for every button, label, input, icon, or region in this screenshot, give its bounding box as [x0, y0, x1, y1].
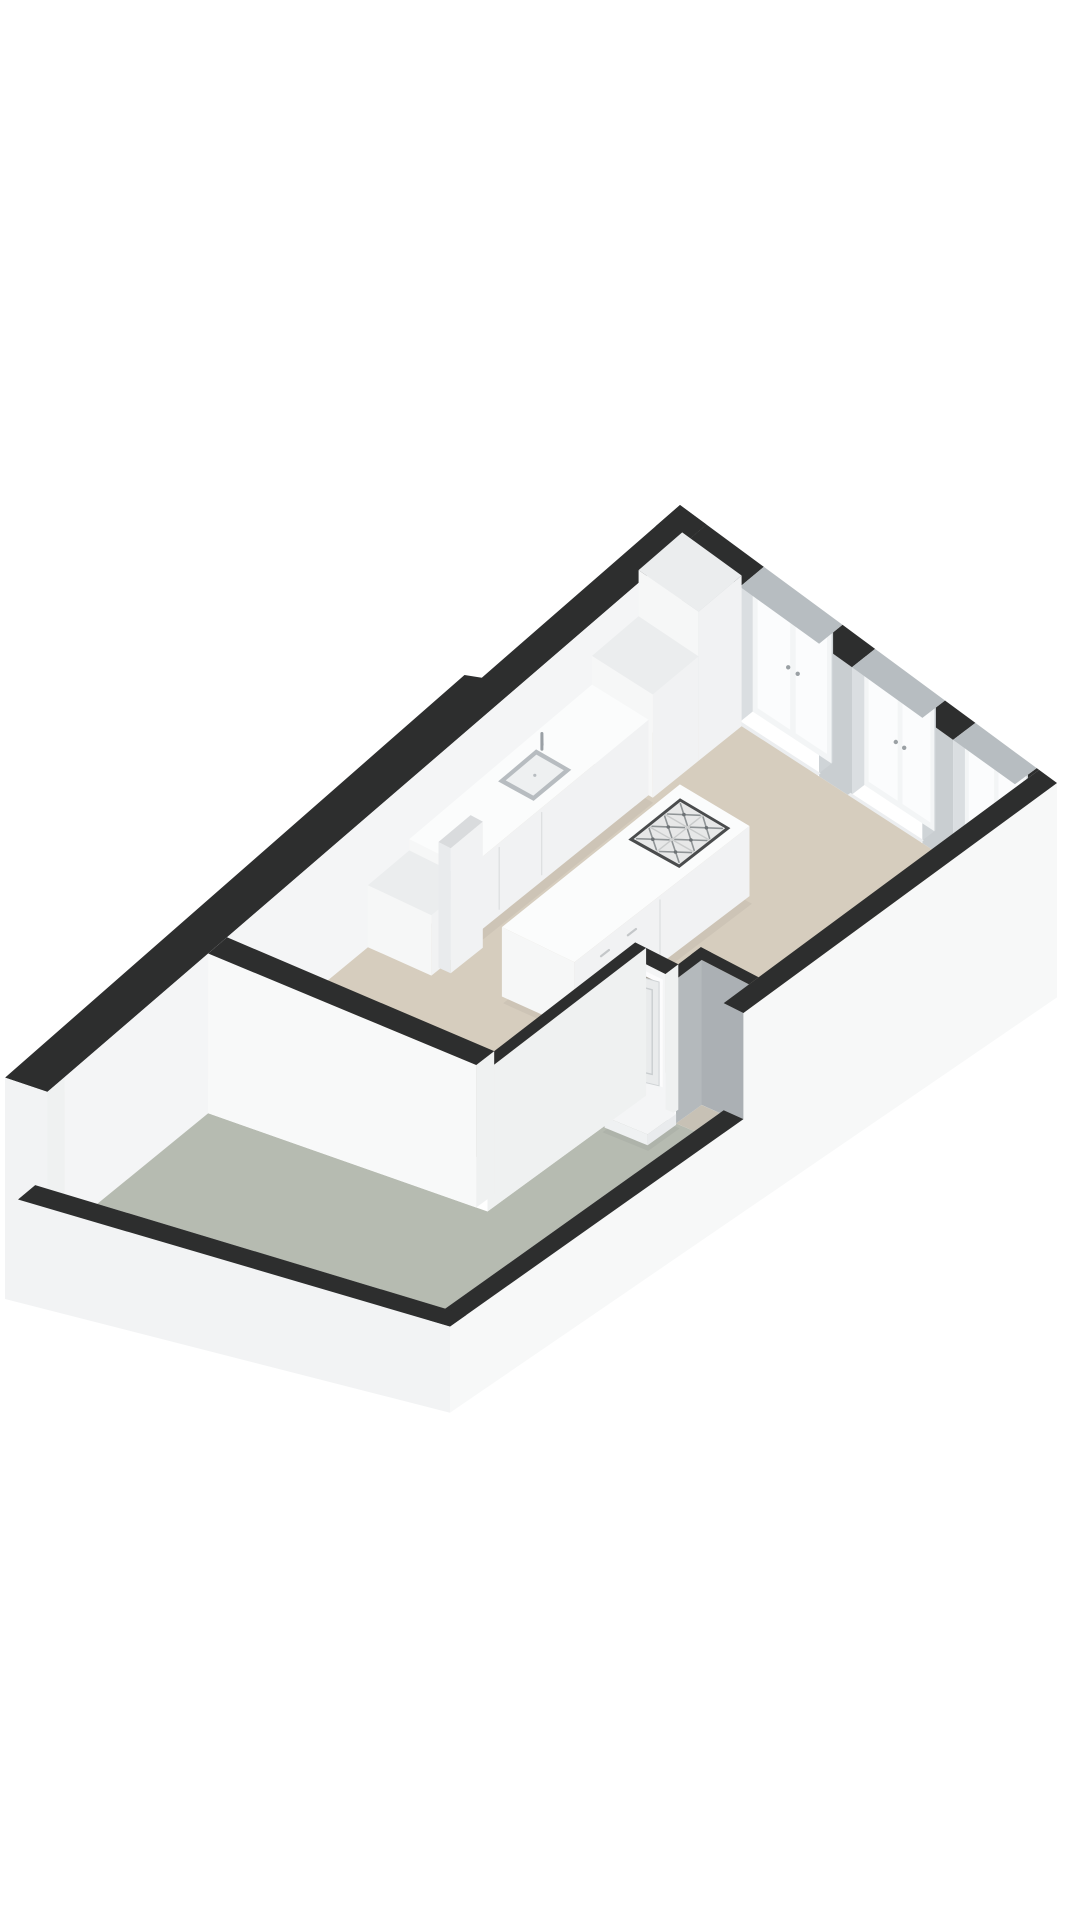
floorplan-3d-render [0, 0, 1080, 1920]
floorplan-canvas [0, 0, 1080, 1920]
